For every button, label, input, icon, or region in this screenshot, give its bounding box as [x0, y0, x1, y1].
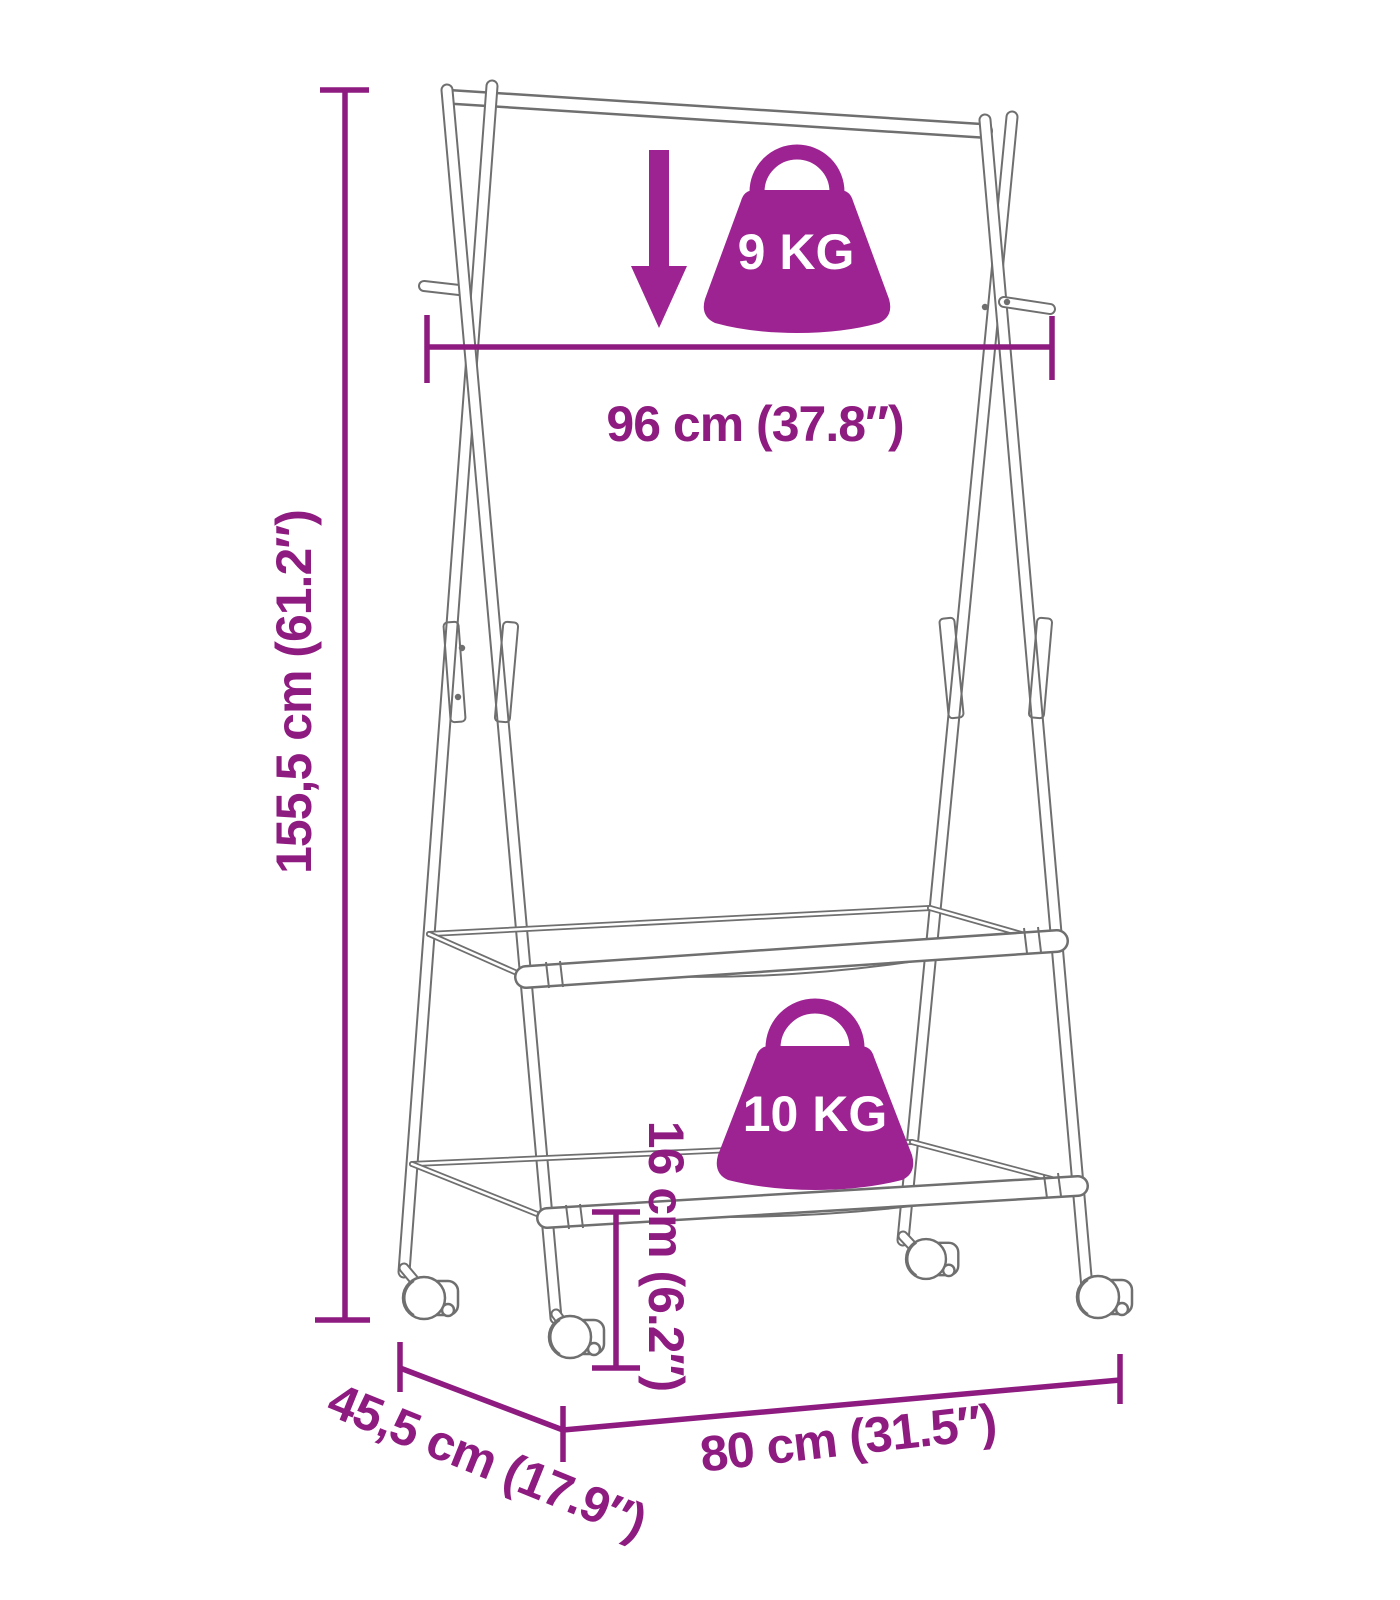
caster-wheel-back-left — [403, 1277, 458, 1319]
rack-line-drawing — [0, 0, 1400, 1600]
height-dimension-label: 155,5 cm (61.2″) — [269, 510, 319, 874]
front-right-leg — [985, 120, 1087, 1288]
down-arrow-icon — [631, 150, 687, 328]
shelf-height-dimension-label: 16 cm (6.2″) — [641, 1121, 691, 1391]
clothes-rack-dimension-diagram: 9 KG 10 KG 96 cm (37.8″) 155,5 cm (61.2″… — [0, 0, 1400, 1600]
rail-capacity-label: 9 KG — [738, 227, 855, 277]
caster-stems — [404, 1236, 1095, 1330]
height-dimension-line — [315, 90, 370, 1320]
hanging-rail — [452, 97, 985, 131]
caster-wheel-front-right — [1077, 1276, 1132, 1318]
rail-width-dimension-label: 96 cm (37.8″) — [606, 399, 903, 449]
shelf-capacity-label: 10 KG — [743, 1089, 888, 1139]
front-left-leg — [447, 90, 556, 1318]
right-hook-peg-icon — [1004, 302, 1050, 309]
caster-wheel-back-right — [906, 1239, 958, 1279]
caster-wheel-front-left — [549, 1316, 604, 1358]
